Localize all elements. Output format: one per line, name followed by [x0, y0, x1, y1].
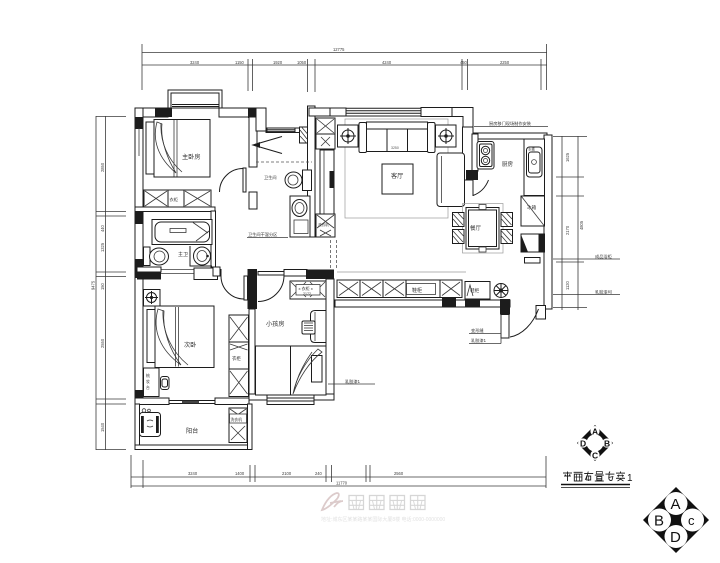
svg-text:小孩房: 小孩房: [266, 320, 285, 328]
svg-text:D: D: [670, 529, 681, 546]
svg-text:1400: 1400: [235, 471, 245, 476]
svg-text:2560: 2560: [394, 471, 404, 476]
svg-text:D: D: [580, 439, 586, 449]
svg-text:成品浴柜: 成品浴柜: [595, 253, 612, 260]
svg-text:2100: 2100: [282, 471, 292, 476]
svg-text:洗衣机: 洗衣机: [231, 417, 243, 422]
svg-text:乳胶漆1: 乳胶漆1: [471, 337, 487, 344]
svg-text:150: 150: [100, 282, 105, 290]
svg-text:客厅: 客厅: [391, 172, 403, 180]
svg-text:12775: 12775: [333, 47, 345, 52]
svg-text:洗衣机: 洗衣机: [318, 222, 329, 227]
svg-text:鞋柜: 鞋柜: [412, 287, 422, 294]
svg-text:1540: 1540: [100, 422, 105, 432]
svg-text:450: 450: [460, 60, 468, 65]
svg-text:11770: 11770: [336, 481, 348, 486]
svg-text:1: 1: [627, 473, 633, 484]
svg-text:主卫: 主卫: [178, 251, 188, 258]
svg-text:卫生间干湿分区: 卫生间干湿分区: [248, 231, 277, 238]
svg-text:1625: 1625: [565, 152, 570, 162]
svg-text:2550: 2550: [100, 338, 105, 348]
svg-text:冰箱: 冰箱: [527, 204, 537, 211]
svg-text:3240: 3240: [190, 60, 200, 65]
svg-text:B: B: [654, 513, 664, 530]
svg-text:4805: 4805: [579, 220, 584, 230]
svg-text:A: A: [671, 496, 681, 513]
svg-text:梳: 梳: [146, 373, 150, 378]
svg-text:х 衣柜 х: х 衣柜 х: [299, 285, 313, 291]
svg-text:9475: 9475: [91, 280, 96, 290]
svg-text:C: C: [592, 451, 598, 461]
svg-text:3240: 3240: [188, 471, 198, 476]
svg-text:2250: 2250: [500, 60, 510, 65]
svg-text:4240: 4240: [382, 60, 392, 65]
svg-text:妆: 妆: [146, 379, 150, 384]
svg-text:1325: 1325: [100, 242, 105, 252]
svg-text:2172: 2172: [303, 292, 311, 296]
svg-text:3250: 3250: [391, 146, 399, 150]
svg-text:阳台: 阳台: [186, 427, 198, 435]
svg-text:乳胶漆1: 乳胶漆1: [345, 378, 361, 385]
svg-text:1150: 1150: [235, 60, 245, 65]
svg-text:卫生间: 卫生间: [264, 174, 277, 181]
svg-text:乳胶漆坷: 乳胶漆坷: [595, 289, 613, 296]
svg-text:厨房移门现场制作安装: 厨房移门现场制作安装: [489, 120, 532, 127]
svg-text:1120: 1120: [565, 280, 570, 290]
svg-text:2170: 2170: [565, 225, 570, 235]
svg-text:主卧房: 主卧房: [182, 153, 201, 161]
svg-text:次卧: 次卧: [184, 341, 196, 349]
svg-text:1920: 1920: [273, 60, 283, 65]
svg-text:2850: 2850: [100, 162, 105, 172]
svg-text:水槽: 水槽: [528, 147, 535, 152]
svg-text:240: 240: [315, 471, 323, 476]
svg-text:1050: 1050: [297, 60, 307, 65]
svg-text:厨房: 厨房: [502, 160, 514, 168]
svg-text:地址:城东区某某路某某国际大厦8楼 电话:0000-0000: 地址:城东区某某路某某国际大厦8楼 电话:0000-0000000: [321, 516, 445, 523]
svg-text:台: 台: [146, 385, 150, 390]
svg-text:A: A: [592, 427, 598, 437]
svg-text:变形缝: 变形缝: [471, 327, 484, 334]
svg-text:餐厅: 餐厅: [470, 224, 482, 232]
svg-text:衣柜: 衣柜: [232, 355, 241, 362]
svg-text:衣柜: 衣柜: [170, 196, 178, 203]
svg-text:B: B: [604, 439, 610, 449]
svg-text:c: c: [688, 513, 695, 528]
svg-text:440: 440: [100, 224, 105, 232]
